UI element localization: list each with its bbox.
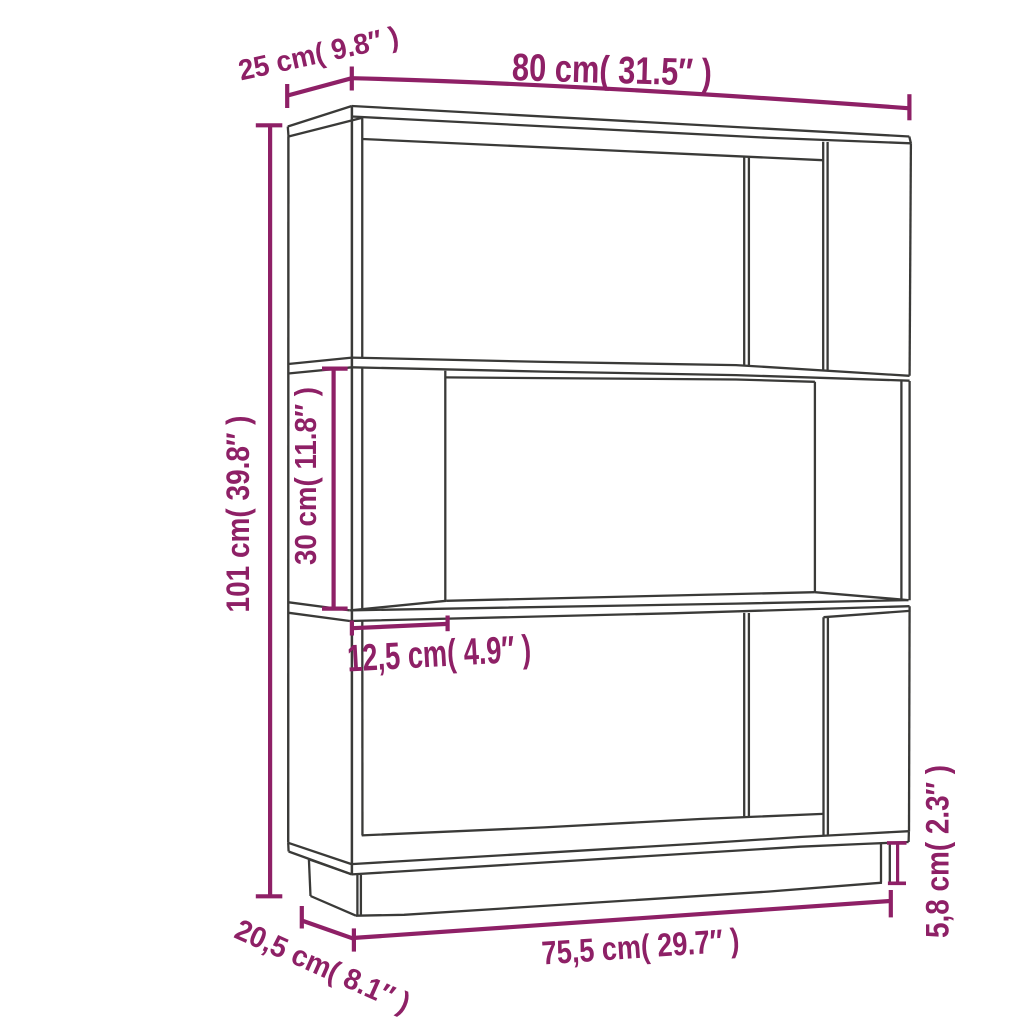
svg-text:30 cm( 11.8″ ): 30 cm( 11.8″ ) <box>288 387 323 565</box>
svg-text:101 cm( 39.8″ ): 101 cm( 39.8″ ) <box>220 416 256 613</box>
svg-text:5,8 cm( 2.3″ ): 5,8 cm( 2.3″ ) <box>920 765 956 938</box>
svg-text:80 cm( 31.5″ ): 80 cm( 31.5″ ) <box>511 46 712 95</box>
